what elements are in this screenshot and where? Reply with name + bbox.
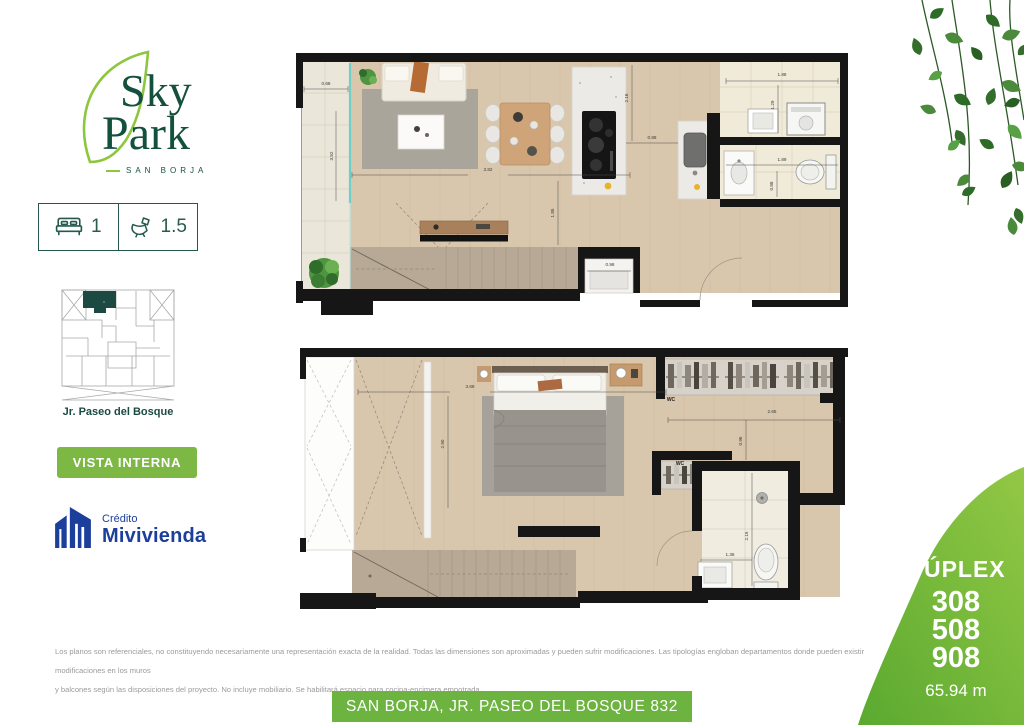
credito-mivivienda-logo: Crédito Mivivienda bbox=[53, 497, 243, 549]
mivivienda-building-icon bbox=[53, 505, 93, 549]
kitchen-sink-counter bbox=[678, 121, 712, 199]
logo-subtitle: SAN BORJA bbox=[106, 166, 207, 175]
upper-floor-plan: 0.683.523.821.852.160.881.881.291.890.88… bbox=[296, 53, 848, 315]
svg-text:0.96: 0.96 bbox=[738, 436, 743, 445]
duplex-title: DÚPLEX bbox=[906, 555, 1005, 582]
bed-icon bbox=[55, 216, 83, 238]
svg-text:1.29: 1.29 bbox=[770, 100, 775, 109]
main-bathroom bbox=[698, 471, 788, 590]
svg-text:0.88: 0.88 bbox=[769, 181, 774, 190]
svg-text:0.68: 0.68 bbox=[322, 81, 331, 86]
logo-text-park: Park bbox=[102, 110, 190, 158]
disclaimer-line-1: Los planos son referenciales, no constit… bbox=[55, 642, 870, 680]
svg-text:0.88: 0.88 bbox=[648, 135, 657, 140]
storage-niche bbox=[578, 247, 640, 293]
svg-text:2.65: 2.65 bbox=[768, 409, 777, 414]
sofa bbox=[382, 61, 466, 101]
svg-text:2.90: 2.90 bbox=[440, 439, 445, 448]
double-height-void bbox=[305, 357, 354, 550]
logo-dash bbox=[106, 170, 120, 172]
decor-item bbox=[605, 183, 612, 190]
toilet-tank bbox=[826, 155, 836, 189]
unit-number-3: 908 bbox=[932, 642, 980, 674]
dresser-tv-console bbox=[518, 526, 600, 537]
svg-text:2.16: 2.16 bbox=[624, 93, 629, 102]
sitemap-diagram bbox=[58, 286, 178, 402]
staircase bbox=[352, 550, 576, 597]
nightstand-left bbox=[477, 366, 491, 382]
hanging-plant-decoration bbox=[890, 0, 1024, 262]
nightstand-right bbox=[610, 364, 642, 386]
svg-text:1.85: 1.85 bbox=[550, 208, 555, 217]
balcony-plant bbox=[309, 258, 339, 288]
unit-area: 65.94 m bbox=[925, 681, 986, 700]
unit-stats-box: 1 1.5 bbox=[38, 203, 198, 251]
low-wall bbox=[424, 362, 431, 538]
highlighted-unit bbox=[83, 291, 116, 313]
svg-text:1.36: 1.36 bbox=[726, 552, 735, 557]
building-sitemap bbox=[58, 286, 178, 402]
duplex-corner-card: DÚPLEX 308 508 908 65.94 m bbox=[849, 465, 1024, 725]
vista-interna-button[interactable]: VISTA INTERNA bbox=[57, 447, 197, 478]
balcony bbox=[301, 62, 350, 291]
address-banner: SAN BORJA, JR. PASEO DEL BOSQUE 832 bbox=[332, 691, 692, 722]
svg-text:1.88: 1.88 bbox=[778, 72, 787, 77]
dining-table bbox=[486, 103, 565, 165]
street-label: Jr. Paseo del Bosque bbox=[28, 406, 208, 418]
bathrooms-stat: 1.5 bbox=[118, 204, 198, 250]
walkin-closet-top bbox=[663, 359, 840, 395]
bathrooms-count: 1.5 bbox=[161, 216, 187, 238]
kitchen-island bbox=[572, 67, 626, 195]
tv-console bbox=[420, 221, 508, 242]
bedrooms-count: 1 bbox=[91, 216, 102, 238]
bedrooms-stat: 1 bbox=[39, 204, 118, 250]
toilet-icon bbox=[129, 216, 153, 238]
svg-text:3.69: 3.69 bbox=[466, 384, 475, 389]
mivivienda-word: Mivivienda bbox=[102, 526, 206, 547]
logo-subtitle-text: SAN BORJA bbox=[126, 166, 207, 175]
coffee-table bbox=[398, 115, 444, 149]
skypark-logo: Sky Park SAN BORJA bbox=[58, 50, 233, 188]
svg-text:3.82: 3.82 bbox=[484, 167, 493, 172]
brochure-page: Sky Park SAN BORJA 1 bbox=[0, 0, 1024, 725]
svg-text:1.89: 1.89 bbox=[778, 157, 787, 162]
svg-text:WC: WC bbox=[667, 397, 676, 403]
bed bbox=[492, 366, 608, 492]
svg-text:0.98: 0.98 bbox=[606, 262, 615, 267]
svg-text:2.15: 2.15 bbox=[744, 531, 749, 540]
lower-floor-plan: 3.692.902.650.962.151.36 WCWC bbox=[300, 348, 848, 620]
svg-text:WC: WC bbox=[676, 461, 685, 467]
half-bathroom bbox=[720, 145, 840, 199]
svg-text:3.52: 3.52 bbox=[329, 151, 334, 160]
